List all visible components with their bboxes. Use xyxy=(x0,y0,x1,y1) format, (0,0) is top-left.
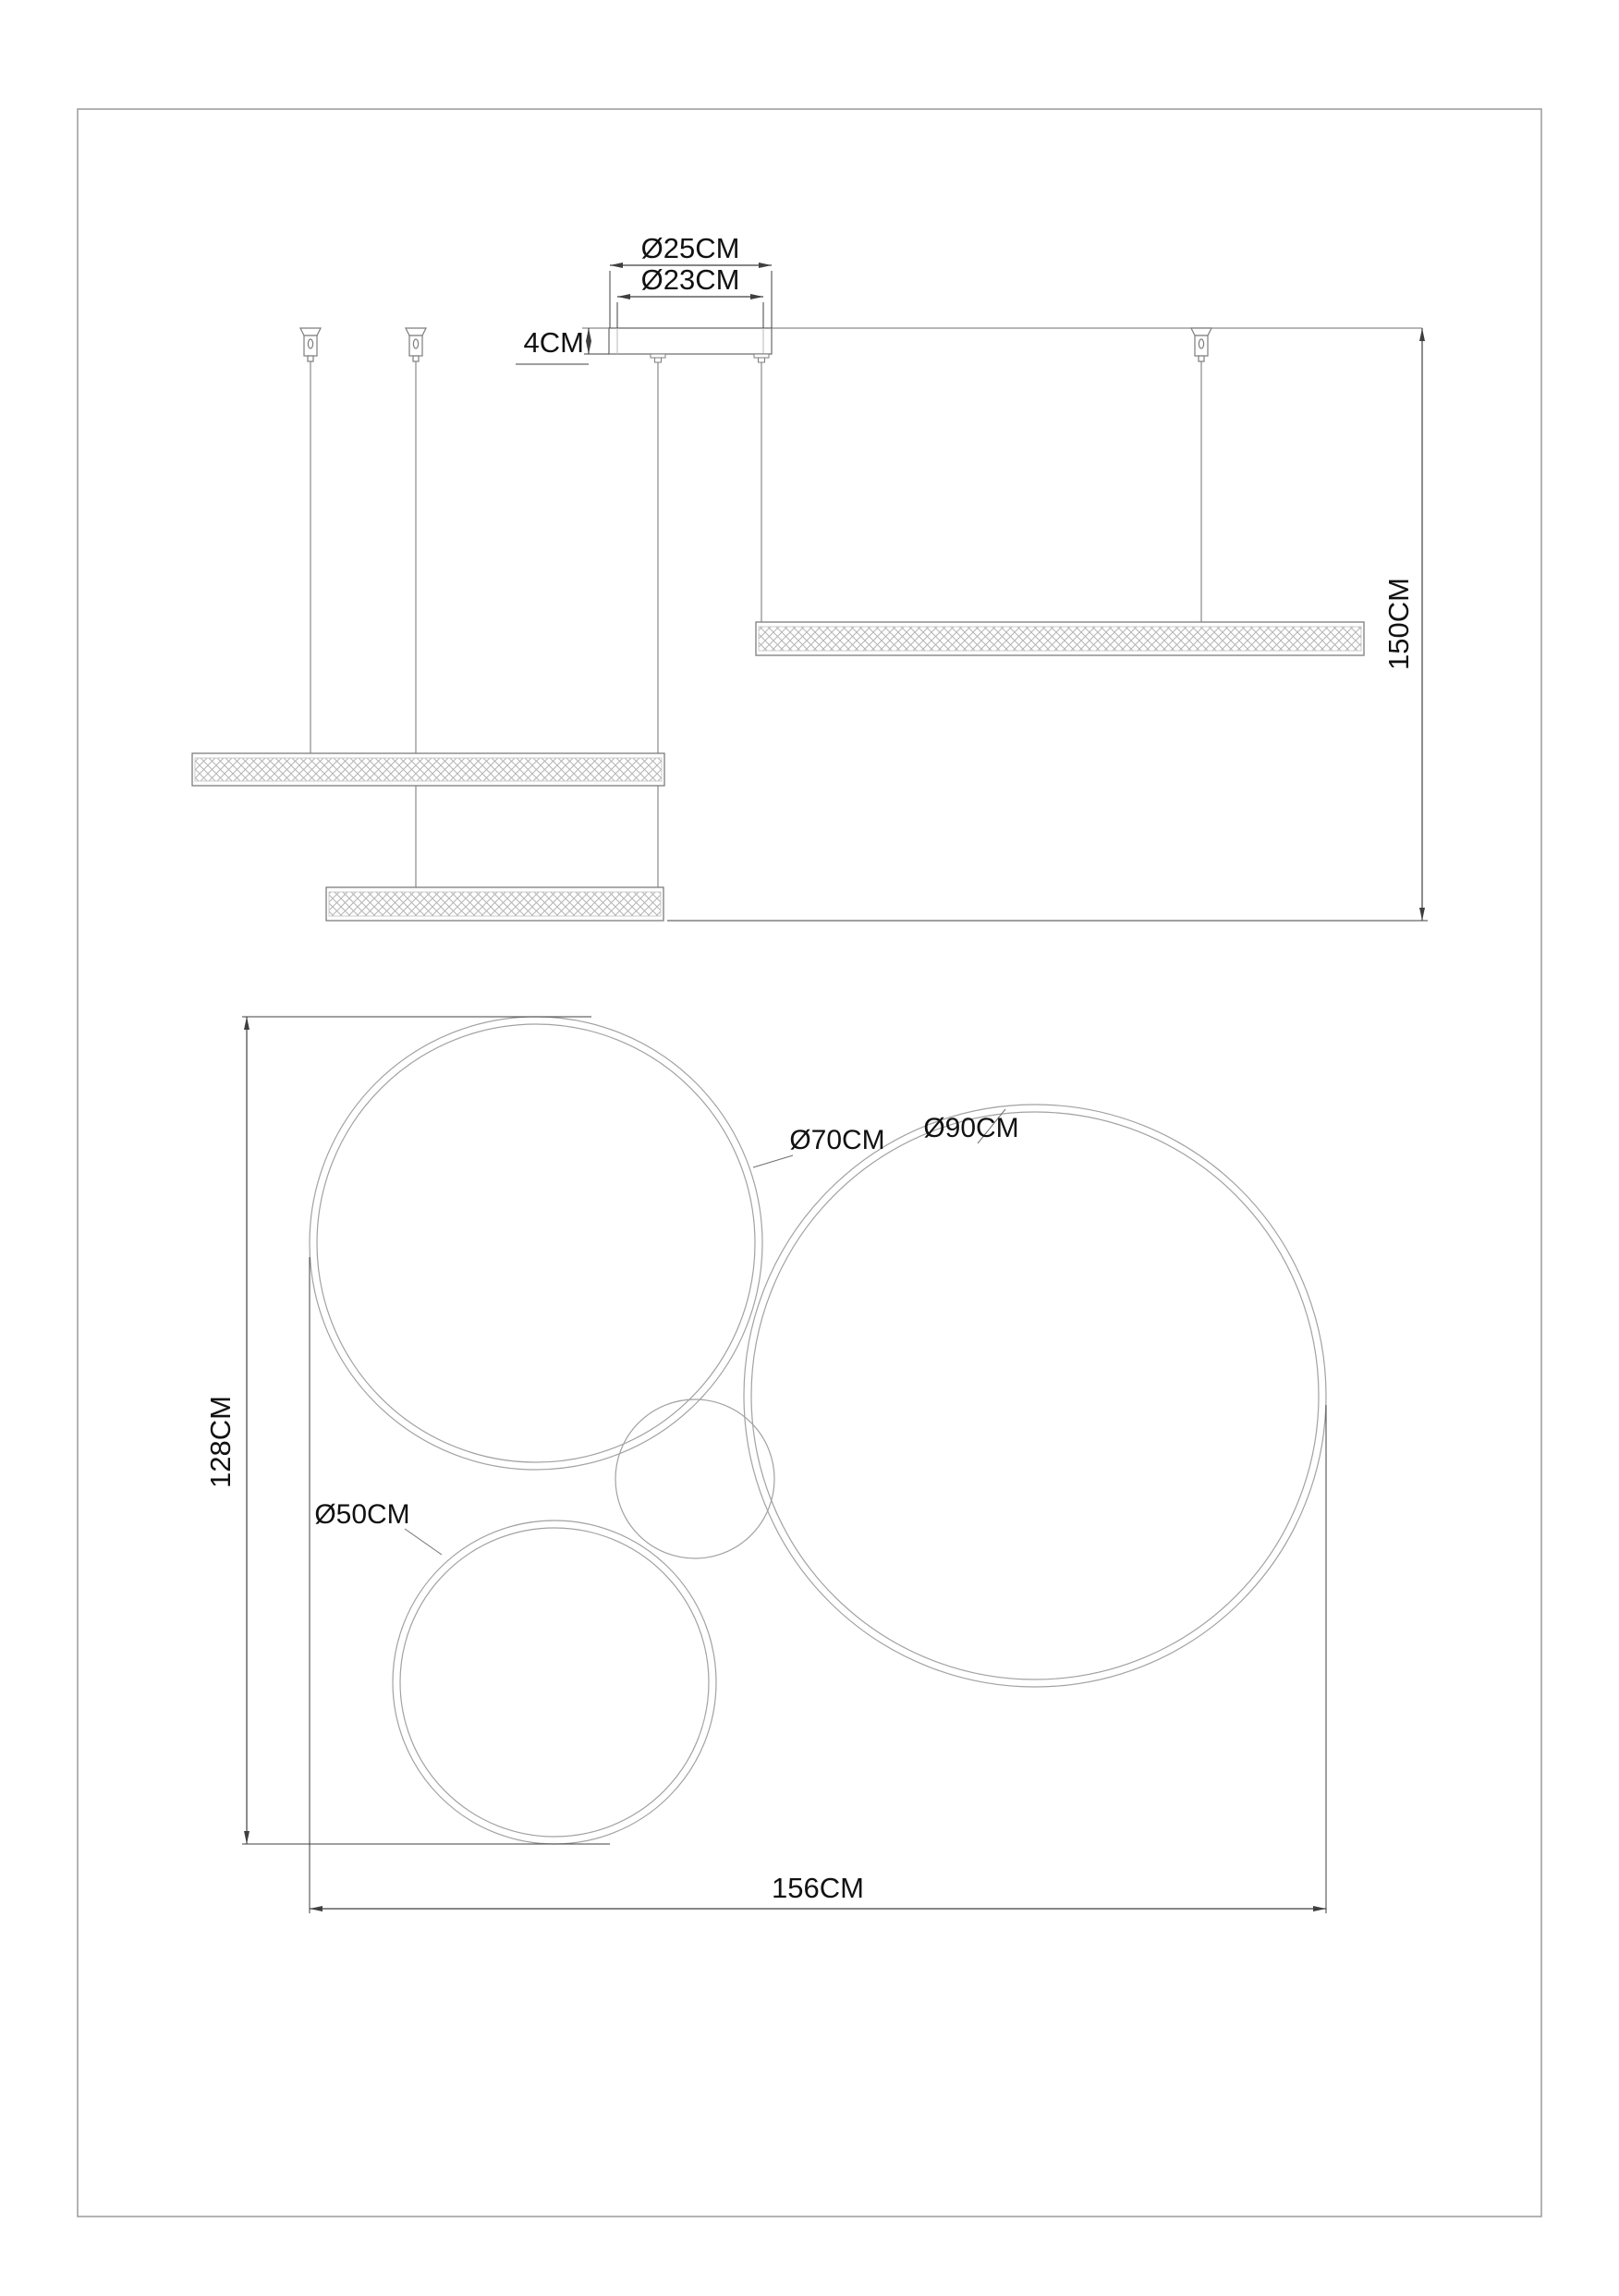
label-ring-medium: Ø70CM xyxy=(753,1125,885,1167)
canopy-inner-dim-label: Ø23CM xyxy=(641,263,740,296)
arrowhead xyxy=(759,263,772,268)
arrowhead xyxy=(586,328,591,341)
arrowhead xyxy=(244,1017,250,1030)
ring50-profile xyxy=(326,887,663,921)
arrowhead xyxy=(610,263,623,268)
cable-gripper-left xyxy=(300,328,321,361)
arrowhead xyxy=(1419,908,1425,921)
cable-gripper-right xyxy=(1191,328,1211,361)
canopy-outer-dim-label: Ø25CM xyxy=(641,232,740,264)
canopy-height-dim-label: 4CM xyxy=(524,326,584,359)
cable-gripper-mid xyxy=(406,328,426,361)
ring-small-label: Ø50CM xyxy=(314,1499,409,1530)
ring70-profile xyxy=(192,753,664,786)
dim-canopy-inner: Ø23CM xyxy=(617,263,763,328)
arrowhead xyxy=(1313,1906,1326,1911)
ring50-plan xyxy=(393,1520,716,1844)
arrowhead xyxy=(617,294,630,299)
technical-drawing-svg: Ø25CM Ø23CM 4CM 150CM xyxy=(0,0,1619,2291)
canopy-plan-circle xyxy=(615,1399,774,1558)
side-elevation-view: Ø25CM Ø23CM 4CM 150CM xyxy=(192,232,1428,921)
canopy-wire-nub-left xyxy=(651,354,665,362)
arrowhead xyxy=(750,294,763,299)
label-ring-small: Ø50CM xyxy=(314,1499,442,1555)
arrowhead xyxy=(310,1906,323,1911)
ring-medium-label: Ø70CM xyxy=(789,1125,884,1155)
label-ring-large: Ø90CM xyxy=(923,1109,1018,1143)
plan-view: Ø70CM Ø90CM Ø50CM 128CM 156CM xyxy=(204,1017,1326,1913)
main-canopy xyxy=(609,328,772,362)
suspension-drop-dim-label: 150CM xyxy=(1382,578,1415,670)
overall-depth-dim-label: 128CM xyxy=(204,1396,237,1488)
ring-large-label: Ø90CM xyxy=(923,1113,1018,1143)
drawing-sheet: Ø25CM Ø23CM 4CM 150CM xyxy=(0,0,1619,2296)
arrowhead xyxy=(244,1831,250,1844)
ring90-profile xyxy=(756,622,1364,655)
dim-overall-depth: 128CM xyxy=(204,1017,610,1844)
ring90-plan xyxy=(744,1105,1326,1687)
dim-canopy-height: 4CM xyxy=(516,326,609,364)
overall-width-dim-label: 156CM xyxy=(772,1872,864,1904)
arrowhead xyxy=(1419,328,1425,341)
arrowhead xyxy=(586,341,591,354)
ring70-plan xyxy=(310,1017,762,1470)
canopy-wire-nub-right xyxy=(754,354,769,362)
